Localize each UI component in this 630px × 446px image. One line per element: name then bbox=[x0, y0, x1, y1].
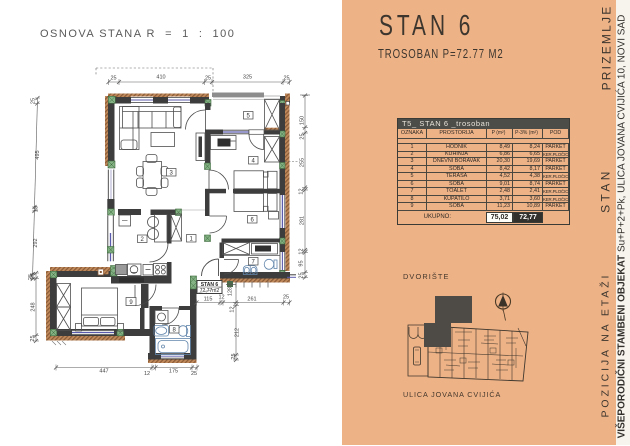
svg-text:212: 212 bbox=[235, 328, 241, 337]
svg-text:25: 25 bbox=[300, 133, 306, 139]
svg-text:25: 25 bbox=[110, 76, 116, 82]
svg-text:25: 25 bbox=[283, 76, 289, 82]
svg-text:495: 495 bbox=[35, 150, 41, 159]
svg-text:25: 25 bbox=[299, 272, 305, 278]
svg-text:25: 25 bbox=[30, 335, 36, 341]
svg-text:248: 248 bbox=[31, 302, 37, 311]
svg-text:128: 128 bbox=[228, 287, 234, 296]
svg-text:325: 325 bbox=[243, 75, 252, 81]
svg-text:25: 25 bbox=[30, 273, 36, 279]
svg-text:12: 12 bbox=[299, 188, 305, 194]
svg-text:292: 292 bbox=[33, 238, 39, 247]
svg-text:25: 25 bbox=[283, 295, 289, 301]
svg-text:175: 175 bbox=[169, 369, 178, 375]
svg-text:12: 12 bbox=[144, 371, 150, 377]
svg-text:115: 115 bbox=[204, 297, 213, 303]
svg-text:12: 12 bbox=[218, 295, 224, 301]
svg-text:447: 447 bbox=[99, 369, 108, 375]
svg-text:95: 95 bbox=[299, 260, 305, 266]
svg-text:12: 12 bbox=[230, 306, 236, 312]
svg-text:72,77m2: 72,77m2 bbox=[200, 288, 220, 294]
svg-text:25: 25 bbox=[191, 371, 197, 377]
svg-text:281: 281 bbox=[300, 216, 306, 225]
svg-text:410: 410 bbox=[156, 75, 165, 81]
svg-text:12: 12 bbox=[299, 248, 305, 254]
svg-text:25: 25 bbox=[31, 98, 37, 104]
svg-text:25: 25 bbox=[205, 76, 211, 82]
svg-text:261: 261 bbox=[247, 297, 256, 303]
svg-text:25: 25 bbox=[231, 353, 237, 359]
svg-text:150: 150 bbox=[300, 116, 306, 125]
svg-text:255: 255 bbox=[300, 158, 306, 167]
svg-text:18: 18 bbox=[34, 206, 40, 212]
